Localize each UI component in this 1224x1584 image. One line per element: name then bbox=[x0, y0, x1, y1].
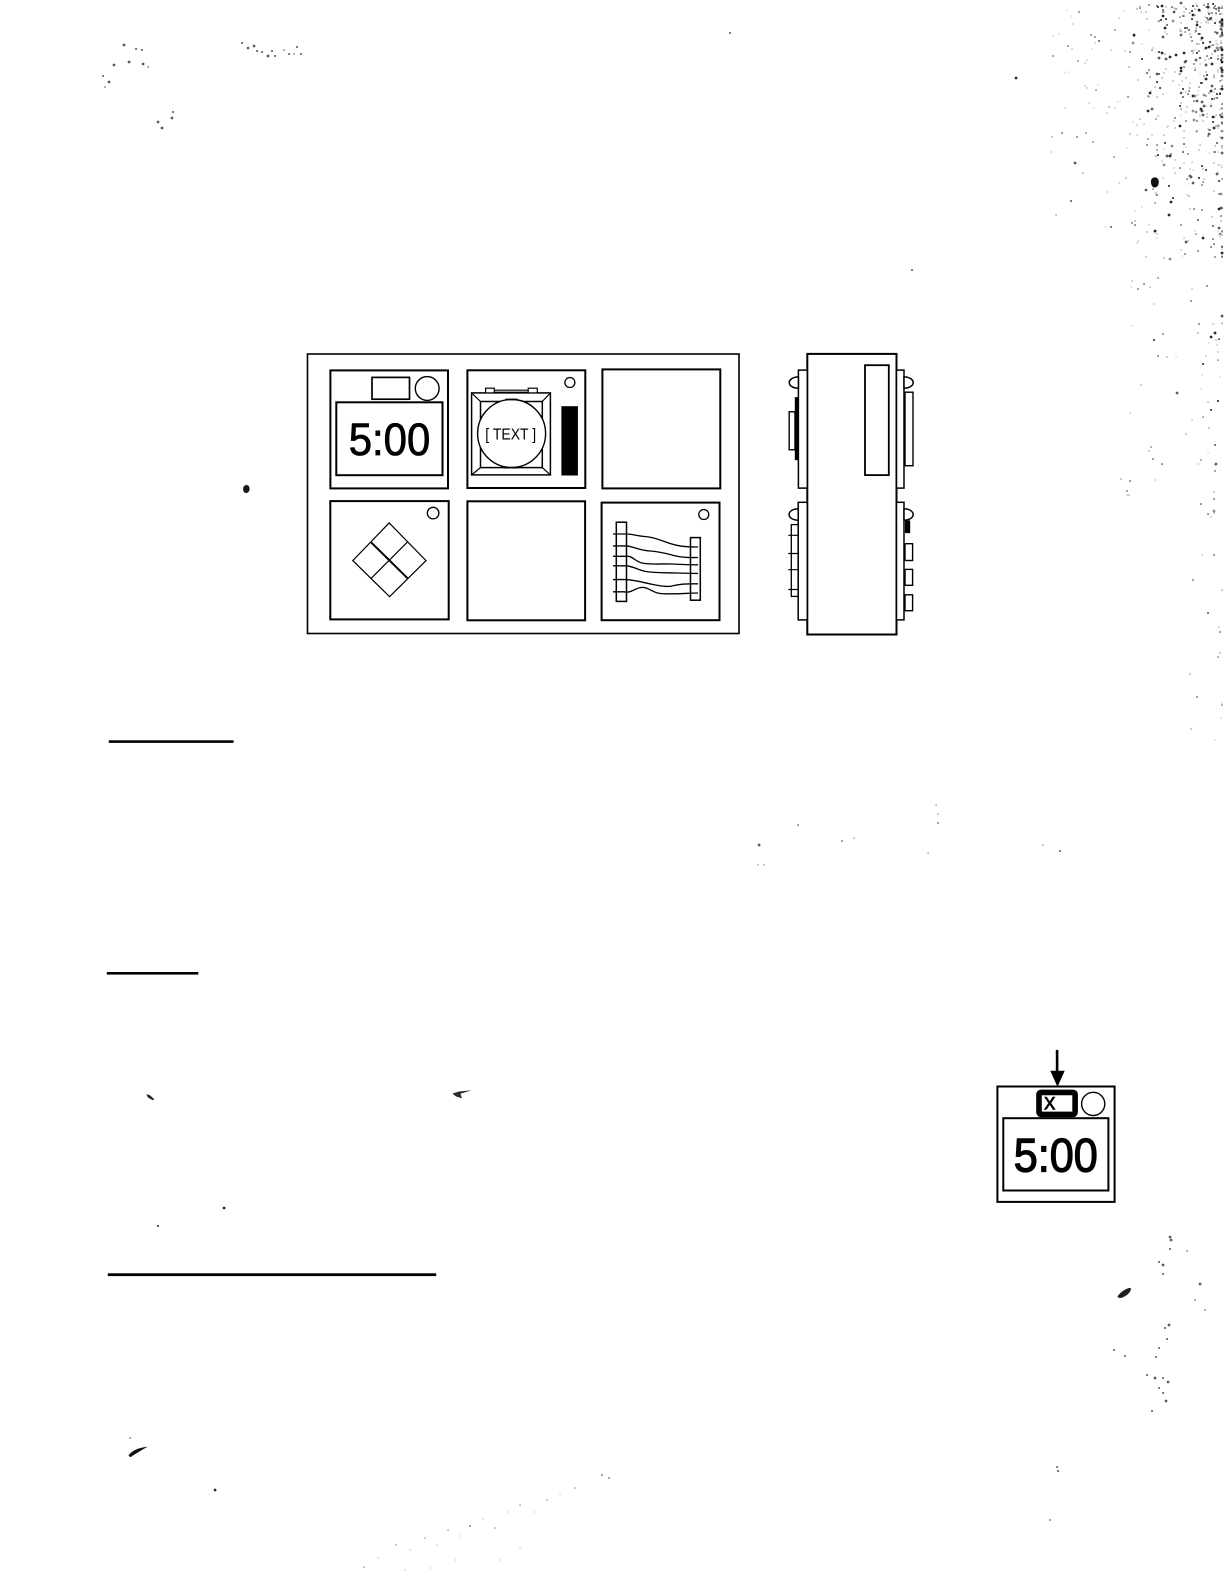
svg-text:x: x bbox=[1044, 1089, 1056, 1115]
svg-text:5:00: 5:00 bbox=[349, 414, 431, 465]
svg-text:5:00: 5:00 bbox=[1014, 1129, 1098, 1182]
svg-text:[ TEXT ]: [ TEXT ] bbox=[485, 427, 536, 444]
